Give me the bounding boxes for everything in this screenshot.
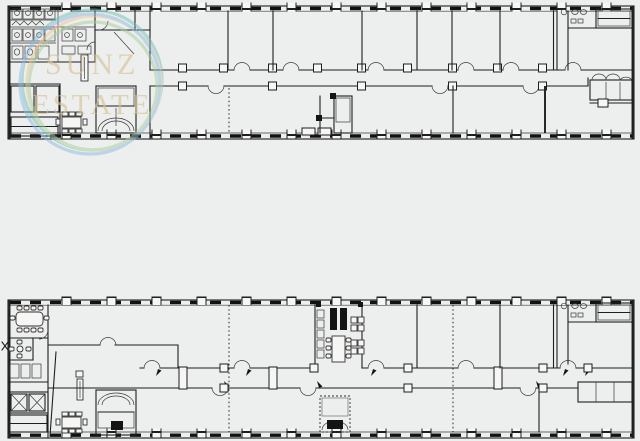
lower-floor-plan: [2, 297, 634, 439]
upper-south-zone: [229, 86, 545, 135]
lower-east-stalls: [578, 382, 632, 402]
upper-columns-top: [30, 3, 620, 12]
lower-elevators: [8, 392, 48, 413]
upper-corridor: [150, 62, 632, 93]
lower-core-west: [2, 305, 178, 438]
lower-lobby: [50, 352, 87, 436]
vending-machine: [340, 308, 347, 330]
lower-lounge: [2, 340, 31, 358]
floor-plan-drawing: SUNZ ESTATE: [0, 0, 640, 441]
lower-escape-stair: [320, 396, 350, 432]
lower-conference-room: [10, 306, 49, 339]
lower-pantry: [315, 302, 364, 368]
lower-stair-east: [596, 303, 632, 322]
lower-grand-stair: [96, 390, 136, 435]
lower-columns-top: [30, 297, 620, 306]
watermark-line2: ESTATE: [32, 89, 152, 121]
floor-plan-page: SUNZ ESTATE: [0, 0, 640, 441]
upper-escape-stair: [302, 93, 352, 135]
vending-machine: [330, 308, 337, 330]
lower-entrance-door: [2, 342, 8, 350]
upper-stair-east: [596, 9, 632, 28]
upper-east-stalls: [588, 74, 632, 107]
lower-core-east: [561, 303, 632, 402]
upper-core-east: [561, 9, 632, 107]
watermark-line1: SUNZ: [45, 48, 139, 81]
upper-north-partitions: [228, 11, 557, 70]
lower-storage-row: [10, 364, 41, 378]
